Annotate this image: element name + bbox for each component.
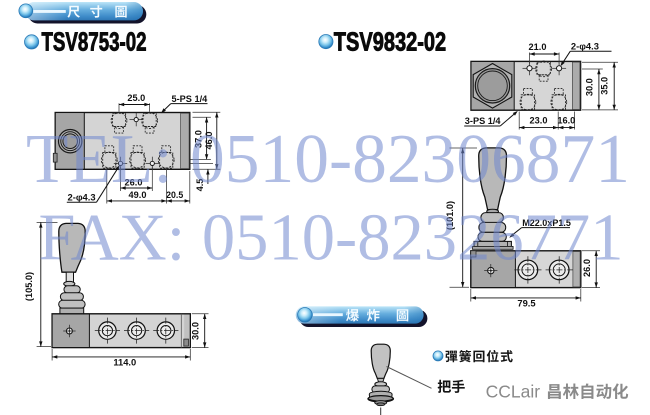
svg-text:(105.0): (105.0) (24, 272, 34, 301)
svg-text:5-PS 1/4: 5-PS 1/4 (172, 94, 209, 104)
svg-text:TSV9832-02: TSV9832-02 (334, 27, 446, 56)
svg-text:TSV8753-02: TSV8753-02 (42, 26, 147, 56)
svg-text:30.0: 30.0 (190, 322, 200, 340)
svg-text:CCLair: CCLair (486, 382, 541, 402)
svg-text:TEL: 0510-82306871: TEL: 0510-82306871 (26, 121, 630, 198)
svg-text:79.5: 79.5 (517, 297, 535, 308)
svg-text:25.0: 25.0 (127, 93, 145, 103)
svg-text:21.0: 21.0 (529, 42, 547, 52)
svg-text:2-φ4.3: 2-φ4.3 (571, 40, 599, 51)
svg-text:30.0: 30.0 (584, 78, 594, 96)
svg-text:114.0: 114.0 (113, 356, 136, 367)
svg-text:35.0: 35.0 (600, 77, 610, 95)
svg-text:FAX: 0510-82326771: FAX: 0510-82326771 (39, 201, 624, 275)
